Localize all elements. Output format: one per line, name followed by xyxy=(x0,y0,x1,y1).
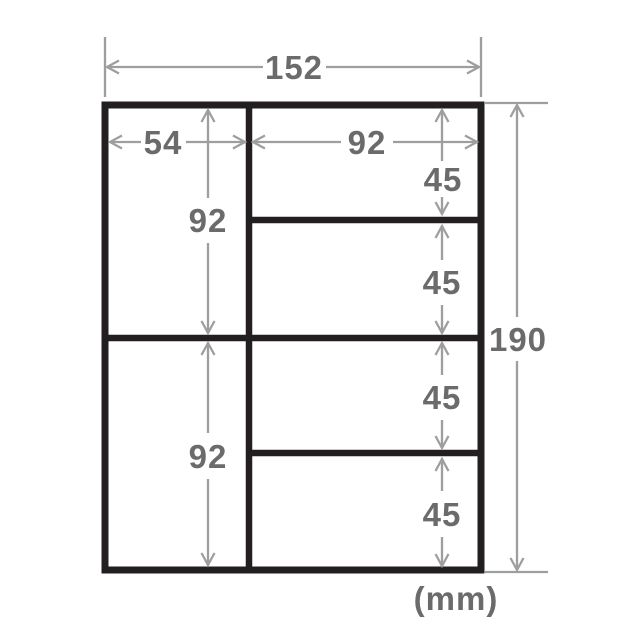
total-width-dimension: 152 xyxy=(105,37,481,97)
right-column-width-dimension: 92 xyxy=(253,124,477,161)
total-height-label: 190 xyxy=(489,321,547,358)
right-row-2-height-dimension: 45 xyxy=(423,226,462,333)
left-column-width-label: 54 xyxy=(144,124,183,161)
right-row-2-height-label: 45 xyxy=(423,264,462,301)
right-row-4-height-label: 45 xyxy=(423,496,462,533)
right-row-4-height-dimension: 45 xyxy=(423,459,462,566)
left-column-width-dimension: 54 xyxy=(110,124,245,161)
left-row-2-height-label: 92 xyxy=(189,438,228,475)
right-row-3-height-dimension: 45 xyxy=(423,343,462,448)
left-row-1-height-dimension: 92 xyxy=(189,110,228,333)
right-column-width-label: 92 xyxy=(348,124,387,161)
left-row-2-height-dimension: 92 xyxy=(189,343,228,565)
right-row-3-height-label: 45 xyxy=(423,379,462,416)
total-height-dimension: 190 xyxy=(485,103,548,572)
dimension-diagram: 152 190 54 92 xyxy=(0,0,640,640)
label-sheet-drawing: 152 190 54 92 xyxy=(0,0,640,640)
unit-label: (mm) xyxy=(414,580,499,617)
right-row-1-height-label: 45 xyxy=(424,161,463,198)
left-row-1-height-label: 92 xyxy=(189,202,228,239)
total-width-label: 152 xyxy=(265,49,323,86)
right-row-1-height-dimension: 45 xyxy=(424,110,463,214)
